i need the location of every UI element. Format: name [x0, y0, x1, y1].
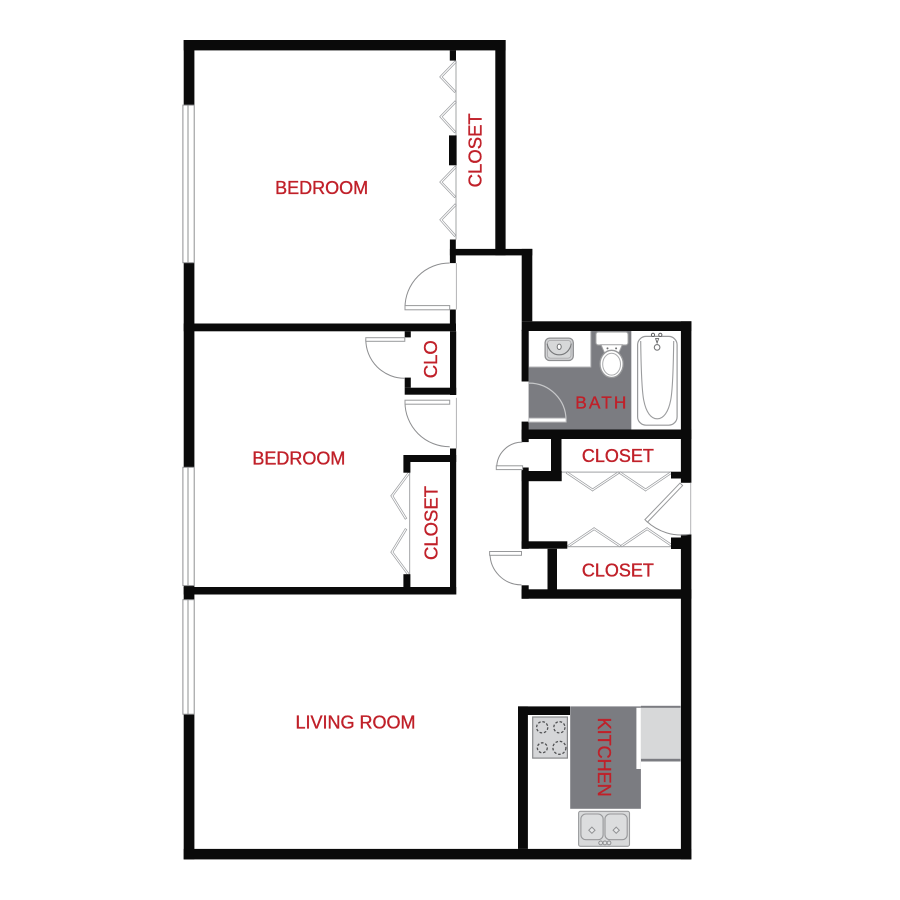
svg-text:CLOSET: CLOSET [582, 446, 654, 466]
svg-text:BEDROOM: BEDROOM [252, 449, 345, 469]
svg-text:CLOSET: CLOSET [421, 486, 442, 560]
svg-text:BATH: BATH [575, 393, 628, 413]
svg-text:CLOSET: CLOSET [465, 113, 486, 187]
svg-text:CLOSET: CLOSET [582, 560, 654, 580]
svg-text:KITCHEN: KITCHEN [594, 718, 614, 797]
svg-text:LIVING ROOM: LIVING ROOM [295, 712, 415, 732]
svg-text:BEDROOM: BEDROOM [275, 178, 368, 198]
svg-text:CLO: CLO [420, 340, 441, 378]
